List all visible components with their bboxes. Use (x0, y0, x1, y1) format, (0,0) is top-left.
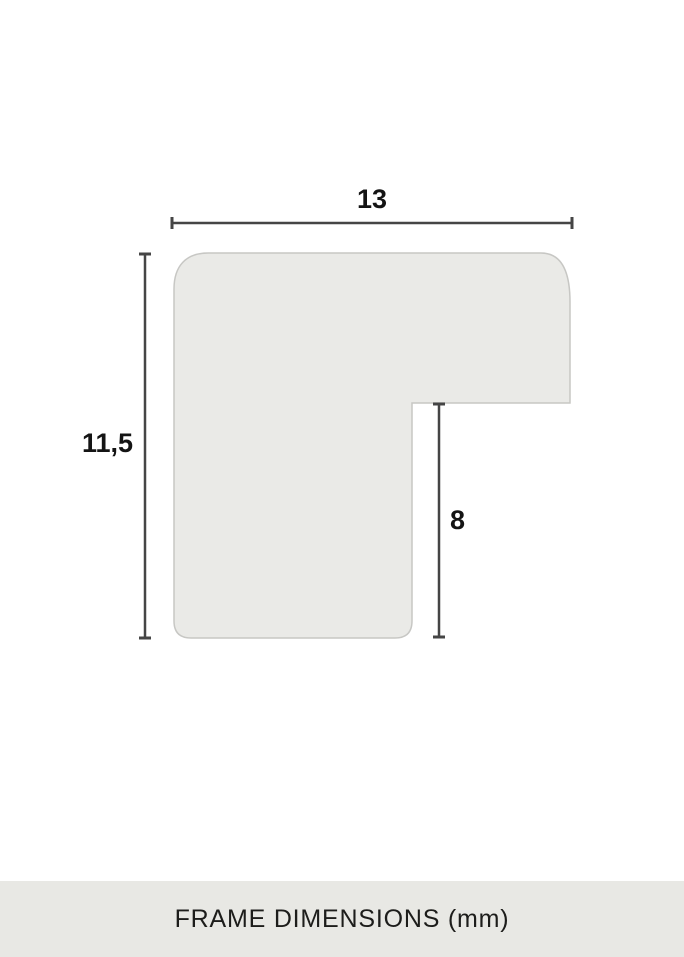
dimension-label-height: 11,5 (40, 430, 133, 457)
dimension-label-rabbet: 8 (450, 507, 465, 534)
diagram-area: 13 11,5 8 (0, 0, 684, 881)
footer-bar: FRAME DIMENSIONS (mm) (0, 881, 684, 957)
frame-dimensions-page: 13 11,5 8 FRAME DIMENSIONS (mm) (0, 0, 684, 957)
dimension-line-rabbet (433, 404, 445, 637)
dimension-line-height (139, 254, 151, 638)
dimension-label-width: 13 (172, 186, 572, 213)
footer-caption: FRAME DIMENSIONS (mm) (175, 905, 510, 934)
frame-profile-shape (174, 253, 570, 638)
dimension-line-width (172, 217, 572, 229)
